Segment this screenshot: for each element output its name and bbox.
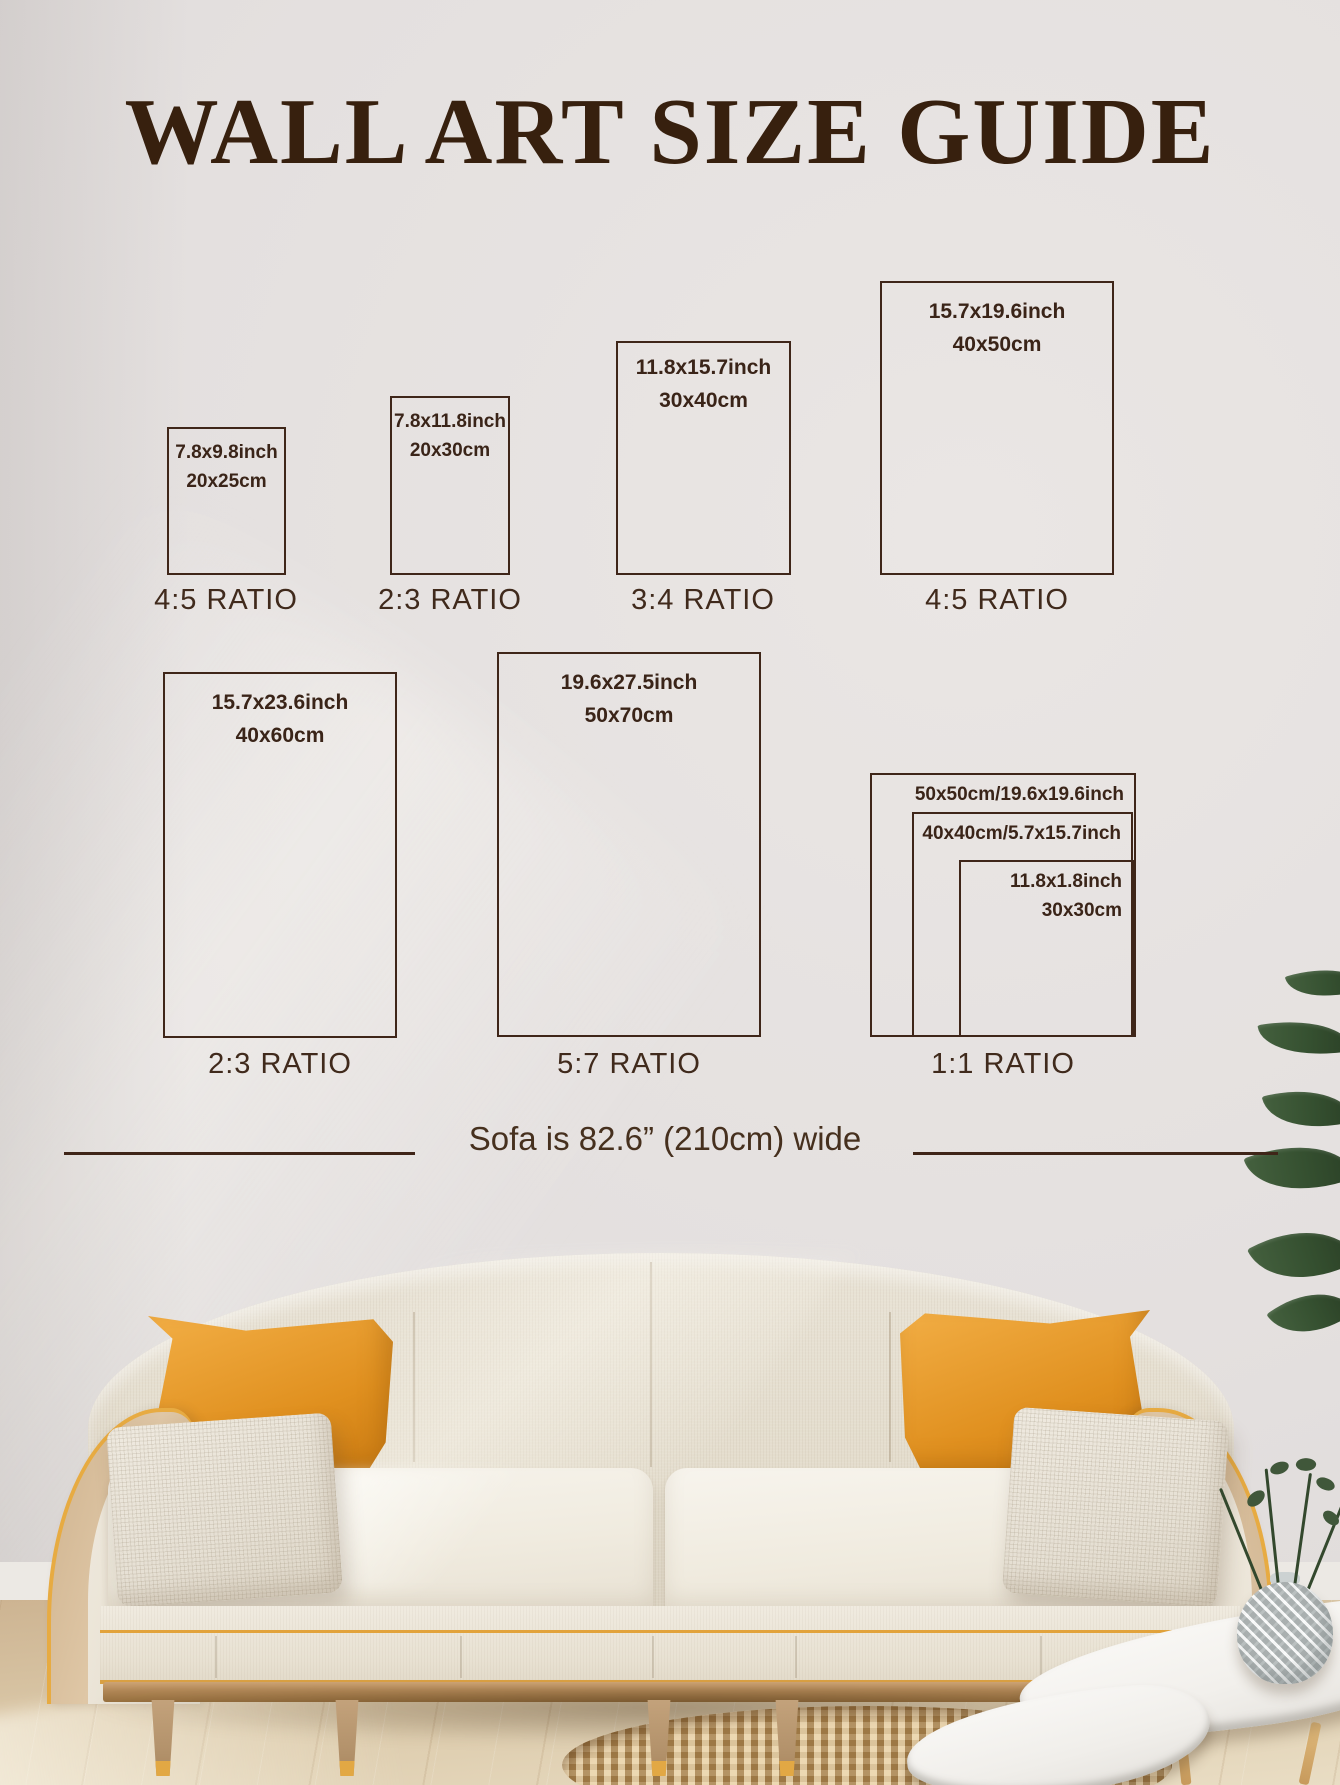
ratio-label-6: 5:7 RATIO bbox=[509, 1048, 749, 1081]
nested-inner-line1: 11.8x1.8inch bbox=[961, 868, 1122, 897]
frame-size-inch: 15.7x23.6inch bbox=[165, 687, 395, 720]
frame-size-text: 19.6x27.5inch 50x70cm bbox=[499, 654, 759, 732]
caption-rule-right bbox=[913, 1152, 1278, 1155]
skirt-seam bbox=[215, 1636, 217, 1678]
frame-size-cm: 20x30cm bbox=[392, 436, 508, 465]
frame-size-text: 15.7x23.6inch 40x60cm bbox=[165, 674, 395, 752]
frame-size-inch: 11.8x15.7inch bbox=[618, 352, 789, 385]
frame-size-cm: 40x50cm bbox=[882, 329, 1112, 362]
plant-leaf bbox=[1243, 1125, 1340, 1212]
ratio-label-7: 1:1 RATIO bbox=[883, 1048, 1123, 1081]
frame-size-cm: 30x40cm bbox=[618, 385, 789, 418]
eucalyptus-leaf bbox=[1314, 1474, 1336, 1494]
frame-size-inch: 7.8x9.8inch bbox=[169, 438, 284, 467]
plant-leaf bbox=[1257, 1011, 1340, 1065]
ratio-label-4: 4:5 RATIO bbox=[877, 584, 1117, 617]
nested-middle-label: 40x40cm/5.7x15.7inch bbox=[914, 814, 1131, 849]
frame-50x70: 19.6x27.5inch 50x70cm bbox=[497, 652, 761, 1037]
caption-rule-left bbox=[64, 1152, 415, 1155]
page-title: WALL ART SIZE GUIDE bbox=[0, 78, 1340, 186]
skirt-seam bbox=[1040, 1636, 1042, 1678]
frame-30x30-inner: 11.8x1.8inch 30x30cm bbox=[959, 860, 1134, 1037]
plant-leaf bbox=[1285, 956, 1340, 1009]
linen-pillow-right bbox=[1002, 1407, 1229, 1608]
frame-size-text: 7.8x11.8inch 20x30cm bbox=[392, 398, 508, 466]
eucalyptus-leaf bbox=[1295, 1456, 1317, 1472]
plant-leaf bbox=[1262, 1077, 1340, 1142]
frame-size-text: 7.8x9.8inch 20x25cm bbox=[169, 429, 284, 497]
nested-inner-label: 11.8x1.8inch 30x30cm bbox=[961, 862, 1132, 925]
frame-size-text: 15.7x19.6inch 40x50cm bbox=[882, 283, 1112, 361]
frame-size-cm: 20x25cm bbox=[169, 467, 284, 496]
frame-size-cm: 50x70cm bbox=[499, 700, 759, 733]
frame-size-text: 11.8x15.7inch 30x40cm bbox=[618, 343, 789, 417]
faceted-glass-vase bbox=[1237, 1582, 1333, 1684]
sofa-back-seam-right bbox=[889, 1312, 891, 1462]
eucalyptus-leaf bbox=[1269, 1460, 1290, 1475]
nested-inner-line2: 30x30cm bbox=[961, 897, 1122, 926]
skirt-seam bbox=[460, 1636, 462, 1678]
ratio-label-1: 4:5 RATIO bbox=[106, 584, 346, 617]
ratio-label-2: 2:3 RATIO bbox=[330, 584, 570, 617]
linen-pillow-left bbox=[106, 1412, 343, 1607]
skirt-seam bbox=[795, 1636, 797, 1678]
frame-size-inch: 7.8x11.8inch bbox=[392, 407, 508, 436]
frame-20x25: 7.8x9.8inch 20x25cm bbox=[167, 427, 286, 575]
skirt-seam bbox=[652, 1636, 654, 1678]
frame-40x50: 15.7x19.6inch 40x50cm bbox=[880, 281, 1114, 575]
plant-leaf bbox=[1247, 1206, 1340, 1305]
frame-40x60: 15.7x23.6inch 40x60cm bbox=[163, 672, 397, 1038]
plant-leaf bbox=[1266, 1271, 1340, 1355]
frame-20x30: 7.8x11.8inch 20x30cm bbox=[390, 396, 510, 575]
wall-art-size-guide-poster: WALL ART SIZE GUIDE 7.8x9.8inch 20x25cm … bbox=[0, 0, 1340, 1785]
frame-size-cm: 40x60cm bbox=[165, 720, 395, 753]
frame-size-inch: 19.6x27.5inch bbox=[499, 667, 759, 700]
sofa-width-caption: Sofa is 82.6” (210cm) wide bbox=[420, 1120, 910, 1158]
nested-outer-label: 50x50cm/19.6x19.6inch bbox=[872, 775, 1134, 810]
sofa-gold-piping bbox=[100, 1630, 1240, 1633]
ratio-label-5: 2:3 RATIO bbox=[160, 1048, 400, 1081]
ratio-label-3: 3:4 RATIO bbox=[583, 584, 823, 617]
frame-30x40: 11.8x15.7inch 30x40cm bbox=[616, 341, 791, 575]
frame-size-inch: 15.7x19.6inch bbox=[882, 296, 1112, 329]
